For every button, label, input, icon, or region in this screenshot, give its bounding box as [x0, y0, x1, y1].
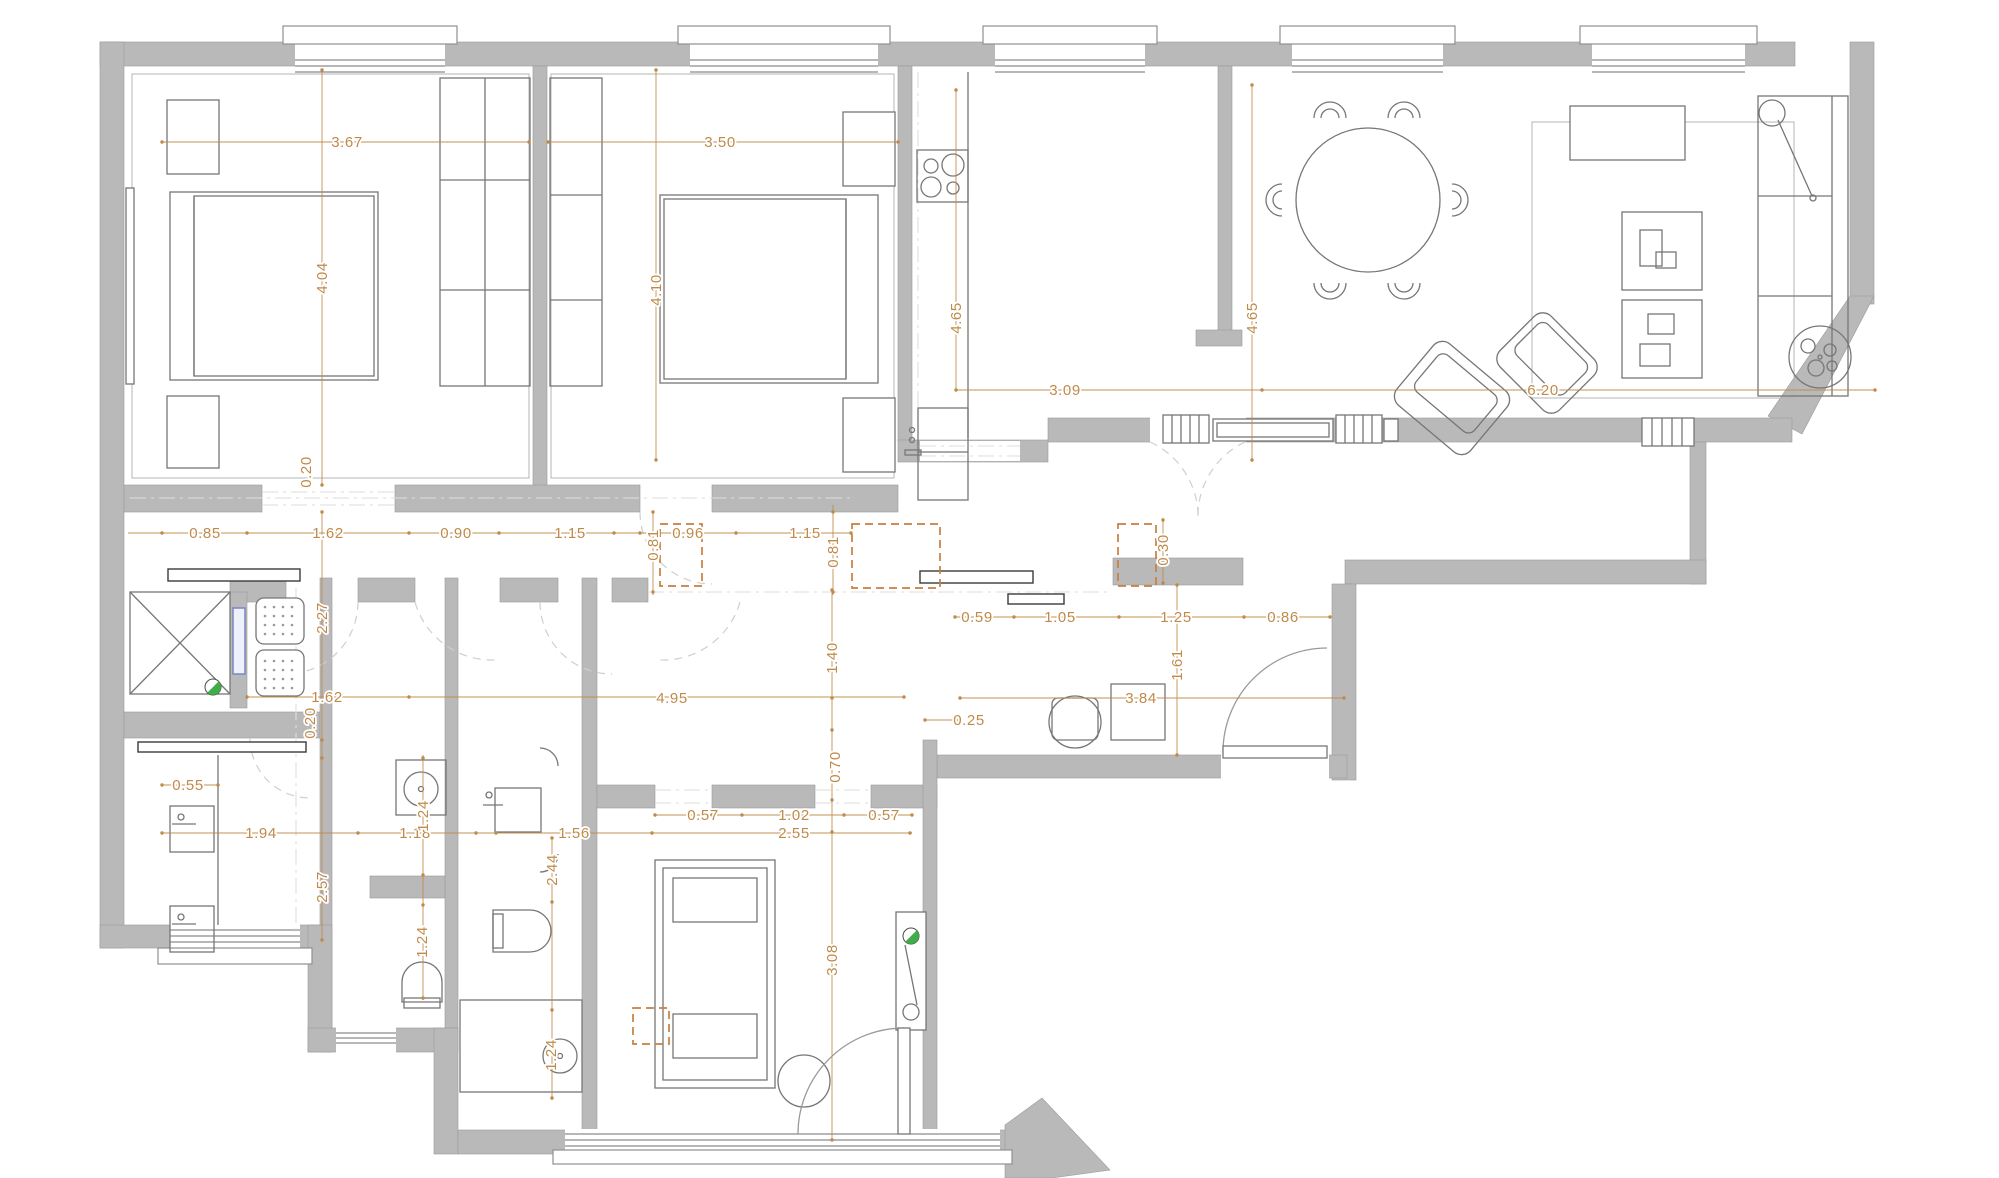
dimension-tick: [356, 831, 359, 834]
dimension-tick: [550, 900, 553, 903]
dimension-label: 1.62: [311, 689, 343, 706]
dimension-tick: [421, 756, 424, 759]
dimension-label: 2.55: [778, 825, 810, 842]
bench: [920, 571, 1033, 583]
dimension-tick: [1250, 83, 1253, 86]
wall-kids-top: [712, 785, 815, 808]
dimension-tick: [1117, 615, 1120, 618]
floor-plan-page: Apartment floor plan with dimensions: [0, 0, 1999, 1178]
bed-double-2: [660, 195, 878, 383]
window-gap: [1592, 41, 1745, 67]
dimension-tick: [550, 1096, 553, 1099]
dimension-label: 0.70: [827, 751, 844, 783]
dimension-label: 0.20: [302, 707, 319, 739]
dimension-tick: [1161, 581, 1164, 584]
dimension-label: 0.81: [825, 536, 842, 568]
dimension-tick: [421, 873, 424, 876]
dimension-label: 1.02: [778, 807, 810, 824]
dimension-label: 4.95: [656, 690, 688, 707]
nightstand: [167, 396, 219, 468]
dimension-tick: [474, 831, 477, 834]
dimension-label: 1.56: [558, 825, 590, 842]
dimension-tick: [1175, 583, 1178, 586]
dimension-label: 4.10: [648, 274, 665, 306]
door-swing: [660, 602, 740, 660]
dimension-label: 3.09: [1049, 382, 1081, 399]
renovation-markers: [633, 524, 1156, 1044]
dimension-label: 1.15: [554, 525, 586, 542]
dimension-label: 4.04: [314, 262, 331, 294]
doormat: [256, 650, 304, 696]
rug: [1532, 122, 1794, 398]
wall-hall-top: [1113, 558, 1243, 585]
dimension-label: 0.85: [189, 525, 221, 542]
dimension-line: [128, 70, 1875, 1140]
dimension-label: 2.27: [314, 602, 331, 634]
dimension-tick: [160, 831, 163, 834]
dimension-tick: [734, 531, 737, 534]
wall-left: [100, 42, 124, 948]
bench: [1008, 594, 1064, 604]
dimension-tick: [546, 140, 549, 143]
armchair: [1492, 308, 1602, 418]
dimension-label: 4.65: [948, 302, 965, 334]
dimension-tick: [1342, 696, 1345, 699]
dimension-tick: [653, 813, 656, 816]
dimension-label: 0.30: [1155, 534, 1172, 566]
dimension-tick: [842, 813, 845, 816]
dimension-label: 1.05: [1044, 609, 1076, 626]
dimension-label: 0.81: [645, 529, 662, 561]
dimension-label: 1.94: [245, 825, 277, 842]
dimension-tick: [421, 996, 424, 999]
dimension-tick: [320, 938, 323, 941]
dining-table: [1296, 128, 1440, 272]
dimension-tick: [651, 510, 654, 513]
sliding-gap: [920, 441, 1020, 461]
dimension-label: 1.61: [1169, 649, 1186, 681]
dimension-tick: [831, 510, 834, 513]
dimension-tick: [910, 813, 913, 816]
wall-corr-bottom: [612, 578, 648, 602]
dimension-tick: [1161, 518, 1164, 521]
wall-bath2-kids: [582, 578, 597, 1140]
curved-partition: [540, 748, 558, 872]
dimension-label: 1.62: [312, 525, 344, 542]
dimension-label: 1.24: [414, 926, 431, 958]
bed-single: [655, 860, 775, 1088]
bench: [168, 569, 300, 581]
dimension-tick: [923, 718, 926, 721]
toilet: [402, 962, 442, 1008]
dimension-label: 3.08: [824, 944, 841, 976]
dimension-tick: [958, 696, 961, 699]
dimension-tick: [407, 531, 410, 534]
dimension-label: 0.57: [868, 807, 900, 824]
wardrobe: [550, 78, 602, 386]
wall-bedroom2-kitchen: [898, 66, 912, 442]
dimension-label: 0.55: [172, 777, 204, 794]
wall-bedrooms-divider: [533, 66, 547, 486]
doors: [798, 648, 1327, 1134]
dimension-tick: [407, 695, 410, 698]
dimension-tick: [421, 903, 424, 906]
dimension-tick: [320, 738, 323, 741]
doormat: [256, 598, 304, 644]
dimension-label: 2.57: [314, 871, 331, 903]
kids-door: [798, 1028, 910, 1134]
bed-double-1: [170, 192, 378, 380]
dimension-label: 0.20: [298, 456, 315, 488]
dimension-tick: [830, 830, 833, 833]
wall-chamfer-bottom: [1005, 1098, 1110, 1178]
shelf: [138, 742, 306, 752]
dimension-tick: [527, 140, 530, 143]
dimension-lines: [128, 70, 1875, 1140]
dimension-tick: [908, 831, 911, 834]
dimension-tick: [320, 68, 323, 71]
dimension-tick: [320, 756, 323, 759]
dimension-tick: [216, 783, 219, 786]
wall-step: [434, 1028, 458, 1154]
dimension-tick: [1328, 615, 1331, 618]
kitchen-counter: [905, 72, 968, 500]
dimension-tick: [494, 831, 497, 834]
wardrobe: [440, 78, 530, 386]
dimension-tick: [830, 1138, 833, 1141]
door-swing: [1150, 442, 1198, 519]
dimension-label: 0.59: [961, 609, 993, 626]
nightstand: [843, 112, 895, 186]
dimension-tick: [849, 531, 852, 534]
wall-bath1-mid: [370, 876, 445, 898]
dimension-tick: [954, 388, 957, 391]
door-swing: [540, 602, 612, 674]
window-gap: [336, 1027, 396, 1053]
dimension-tick: [612, 531, 615, 534]
dimension-tick: [830, 588, 833, 591]
wall-corr-bottom: [358, 578, 415, 602]
dimension-label: 4.65: [1244, 302, 1261, 334]
cooktop: [917, 150, 968, 202]
dimension-label: 1.25: [1160, 609, 1192, 626]
entrance-door: [1223, 648, 1327, 758]
dimension-tick: [160, 140, 163, 143]
bathroom2-sink: [483, 788, 541, 832]
dimension-tick: [1175, 753, 1178, 756]
elevator-door: [233, 608, 245, 674]
sideboard: [1570, 106, 1685, 160]
dimension-label: 0.96: [672, 525, 704, 542]
floor-lamp: [1759, 100, 1816, 201]
dimension-label: 1.40: [824, 642, 841, 674]
window-gap: [690, 41, 878, 67]
dimension-tick: [1260, 388, 1263, 391]
dimension-tick: [654, 68, 657, 71]
dimension-tick: [320, 483, 323, 486]
dimension-tick: [651, 590, 654, 593]
dimension-tick: [654, 458, 657, 461]
window-gap: [1292, 41, 1443, 67]
window-gap: [295, 41, 445, 67]
dimension-ticks: [160, 68, 1876, 1141]
dimension-tick: [830, 696, 833, 699]
dimension-tick: [830, 798, 833, 801]
wall-kids-top: [597, 785, 655, 808]
hall-chair: [1049, 696, 1101, 748]
dimension-label: 1.15: [789, 525, 821, 542]
wall-kitchen-dining: [1218, 66, 1232, 336]
dimension-tick: [902, 695, 905, 698]
radiator: [126, 188, 134, 384]
dimension-tick: [740, 813, 743, 816]
wall-laundry-top: [124, 712, 320, 738]
dimension-label: 3.67: [331, 134, 363, 151]
elevator: [130, 592, 230, 698]
dimension-label: 3.84: [1125, 690, 1157, 707]
dimension-tick: [320, 510, 323, 513]
dimension-label: 3.50: [704, 134, 736, 151]
dimension-tick: [953, 615, 956, 618]
dimension-tick: [638, 531, 641, 534]
radiator-niche: [896, 912, 926, 1030]
dimension-tick: [1250, 458, 1253, 461]
dimension-tick: [830, 728, 833, 731]
window-gap: [995, 41, 1145, 67]
nightstand: [167, 100, 219, 174]
dimension-label: 6.20: [1527, 382, 1559, 399]
dimension-label: 1.24: [415, 800, 432, 832]
dimension-tick: [160, 531, 163, 534]
dimension-tick: [550, 836, 553, 839]
dimension-tick: [550, 1008, 553, 1011]
toilet: [493, 910, 551, 952]
coffee-table: [1622, 212, 1702, 290]
floor-plan-drawing: Apartment floor plan with dimensions: [0, 0, 1999, 1178]
dimension-tick: [497, 531, 500, 534]
door-swing: [1198, 442, 1245, 519]
nightstand: [843, 398, 895, 472]
dimension-label: 0.86: [1267, 609, 1299, 626]
dimension-label: 0.57: [687, 807, 719, 824]
dimension-label: 0.25: [953, 712, 985, 729]
dimension-tick: [160, 783, 163, 786]
dimension-tick: [954, 88, 957, 91]
wall-kitchen-cap: [1196, 330, 1242, 346]
dimension-tick: [1012, 615, 1015, 618]
dimension-tick: [896, 140, 899, 143]
shower: [460, 1000, 582, 1092]
dimension-label: 0.90: [440, 525, 472, 542]
dimension-label: 2.44: [544, 854, 561, 886]
dimension-tick: [1242, 615, 1245, 618]
dimension-tick: [1873, 388, 1876, 391]
dimension-tick: [245, 531, 248, 534]
washing-machine: [170, 806, 214, 852]
coffee-table: [1622, 300, 1702, 378]
wall-chamfer: [1768, 296, 1874, 434]
wall-corr-bottom: [500, 578, 558, 602]
dimension-tick: [650, 831, 653, 834]
dimension-tick: [245, 695, 248, 698]
wall-hall-right: [1332, 584, 1356, 780]
wall-corridor-bottom: [1345, 560, 1706, 584]
wall-right: [1850, 42, 1874, 304]
dimension-label: 1.24: [543, 1039, 560, 1071]
